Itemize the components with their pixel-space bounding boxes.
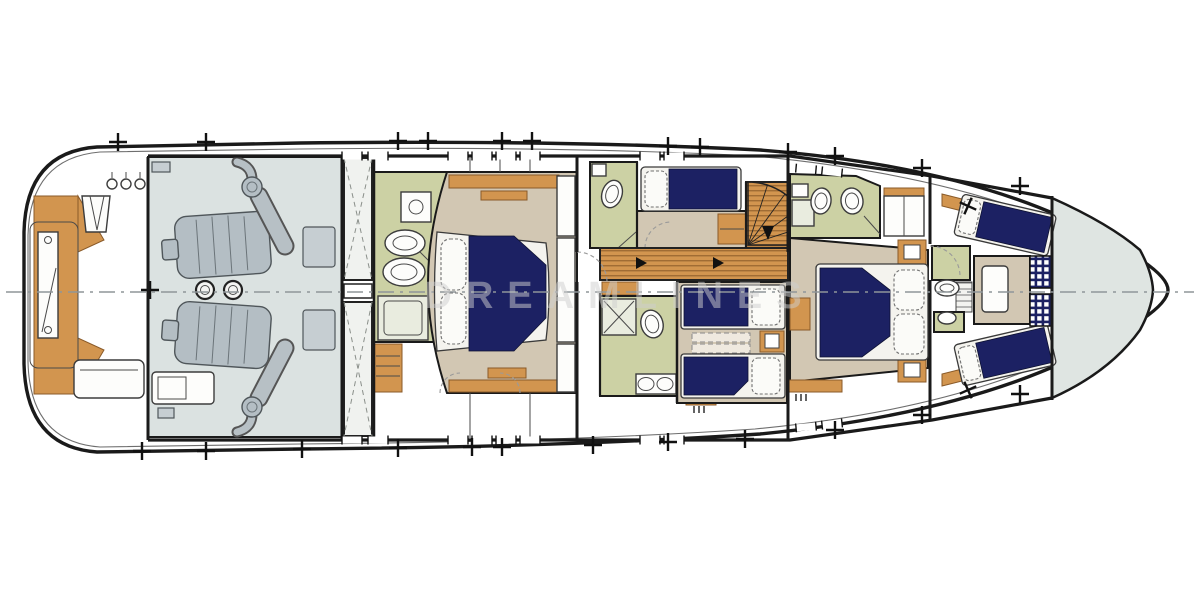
- generator-port: [303, 227, 335, 267]
- dresser: [374, 344, 402, 392]
- pillow: [645, 171, 667, 207]
- yacht-floorplan-page: Motor yacht lower deck general arrangeme…: [0, 0, 1200, 600]
- locker-bottom: [449, 380, 559, 392]
- sink: [401, 192, 431, 222]
- bidet: [383, 258, 425, 286]
- hatch-port: [196, 281, 214, 299]
- pillow: [894, 314, 924, 354]
- engine-room: Engine room: [141, 157, 342, 437]
- passerelle: [38, 232, 58, 338]
- single-guest-cabin: Single guest cabin: [637, 167, 746, 248]
- pillow: [752, 358, 780, 394]
- single-bedspread: [669, 169, 737, 209]
- tank-space: Fuel tank space: [344, 158, 372, 436]
- floor-plan: Motor yacht lower deck general arrangeme…: [0, 0, 1200, 600]
- vip-bedspread: [820, 268, 890, 357]
- wardrobe: [557, 176, 575, 236]
- vanity: [636, 374, 676, 394]
- twin-bedspread-2: [684, 357, 748, 395]
- crew-table: [982, 266, 1008, 312]
- hatch-starboard: [224, 281, 242, 299]
- storage-shelves: [1030, 294, 1052, 326]
- storage-shelves: [1030, 256, 1052, 288]
- generator-starboard: [303, 310, 335, 350]
- pillow: [894, 270, 924, 310]
- wardrobe: [557, 344, 575, 392]
- headboard-locker-top: [449, 175, 559, 188]
- foot-bench: [488, 368, 526, 378]
- toilet: [385, 230, 425, 256]
- guest-bathroom: Guest bathroom: [590, 162, 637, 248]
- stern-locker: [74, 360, 144, 398]
- watermark-text: DREAMLINES: [424, 275, 815, 317]
- shower: [378, 296, 428, 340]
- forepeak: Forepeak chain locker: [1052, 198, 1153, 398]
- toilet: [935, 280, 959, 296]
